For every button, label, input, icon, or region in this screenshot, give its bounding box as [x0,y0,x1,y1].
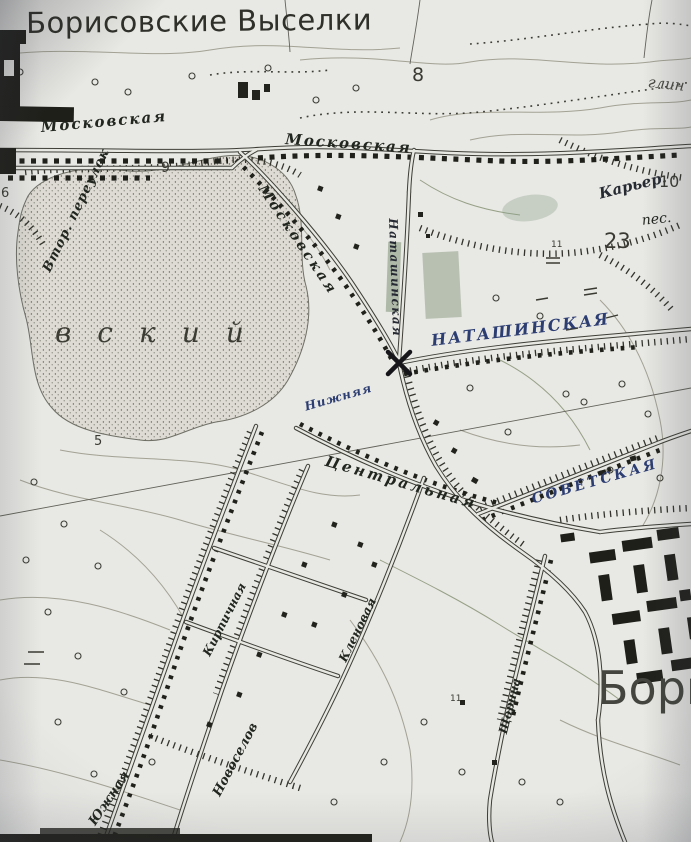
photo-vignette-overlay [0,0,691,842]
map-scan: Борисовские Выселки Московская Московска… [0,0,691,842]
